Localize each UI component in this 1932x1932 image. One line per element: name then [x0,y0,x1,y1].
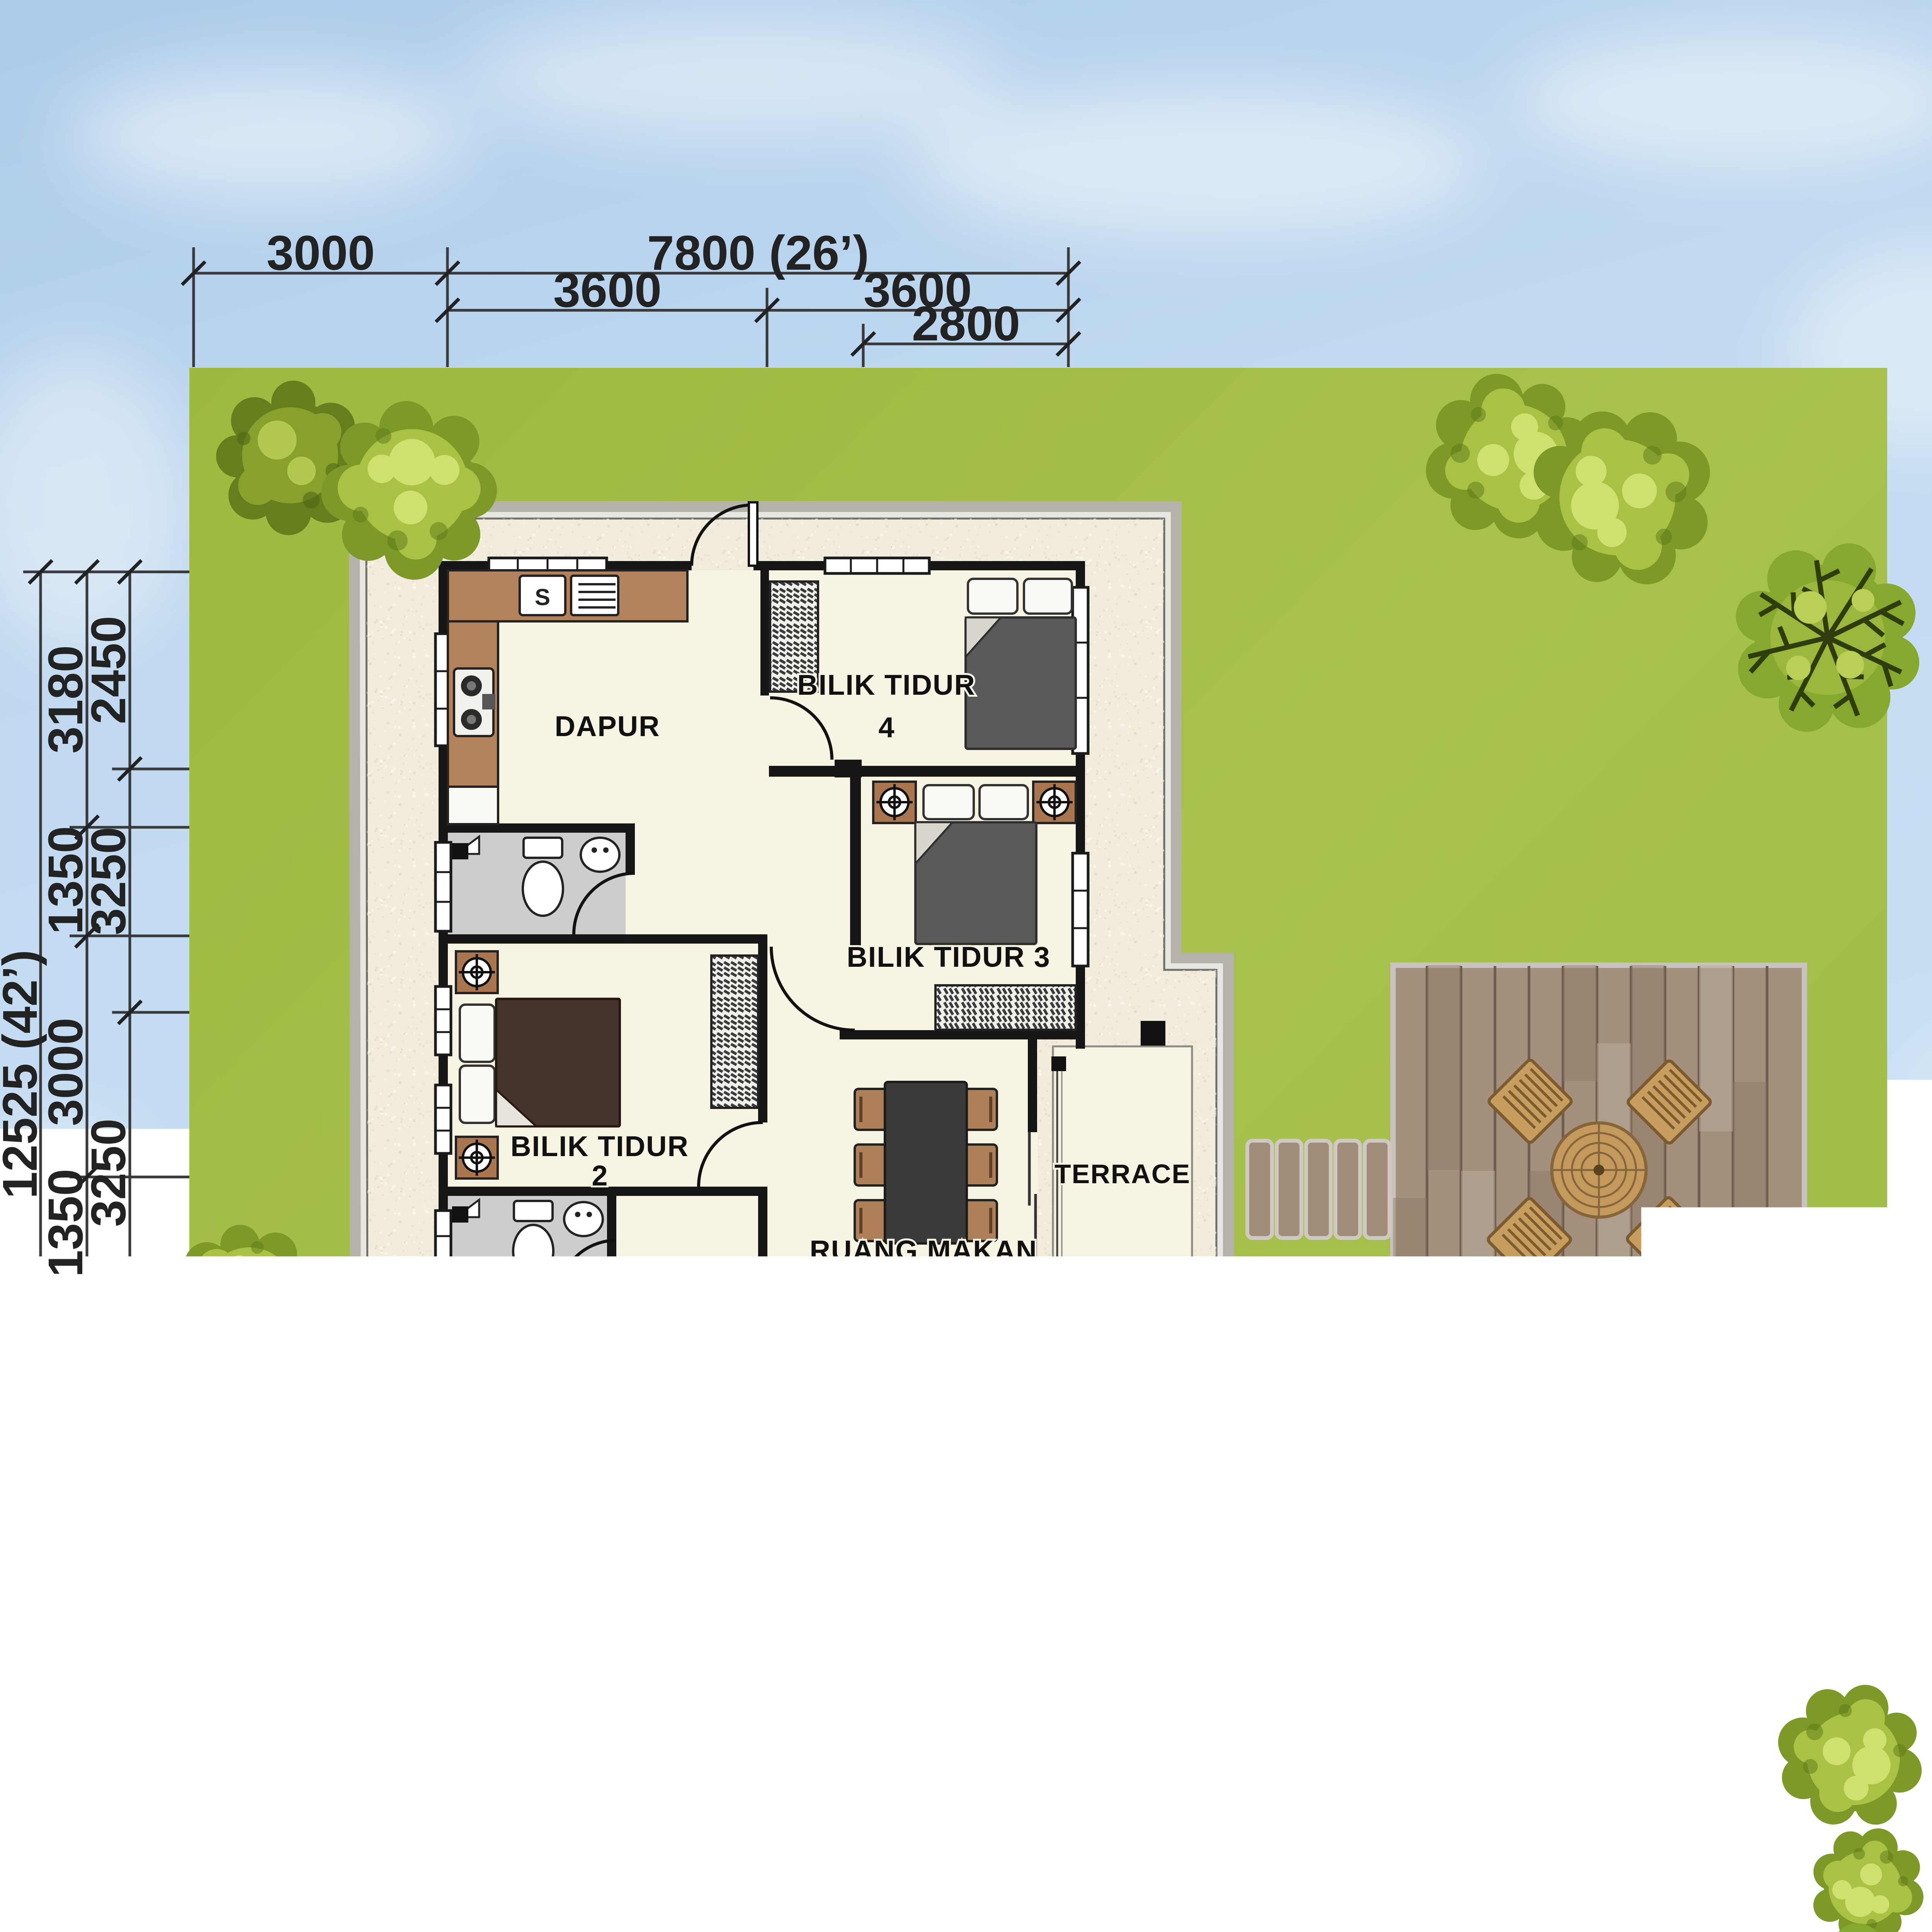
svg-text:BILIK TIDUR: BILIK TIDUR [510,1130,689,1162]
svg-text:TERRACE: TERRACE [1054,1159,1190,1189]
svg-text:BILIK TIDUR 3: BILIK TIDUR 3 [847,941,1051,973]
svg-text:DAPUR: DAPUR [554,710,660,742]
svg-text:2: 2 [592,1160,607,1192]
svg-text:3000: 3000 [38,1018,93,1126]
svg-text:6150: 6150 [38,1756,93,1864]
svg-text:3250: 3250 [81,827,136,935]
svg-text:1: 1 [595,1563,611,1595]
svg-text:7800 (26’): 7800 (26’) [647,226,869,280]
svg-text:BILIK TIDUR: BILIK TIDUR [797,669,976,701]
svg-text:2800: 2800 [912,296,1020,351]
svg-text:3000: 3000 [267,226,375,280]
svg-text:RUANG TAMU: RUANG TAMU [769,1393,970,1425]
svg-text:RUANG MAKAN: RUANG MAKAN [810,1235,1037,1267]
svg-text:S: S [535,584,550,610]
svg-text:3250: 3250 [81,1119,136,1227]
svg-text:3250: 3250 [81,1403,136,1511]
svg-text:3600: 3600 [553,263,662,317]
svg-text:2450: 2450 [81,616,136,724]
svg-text:BILIK TIDUR: BILIK TIDUR [514,1531,692,1563]
svg-text:4: 4 [878,711,894,743]
